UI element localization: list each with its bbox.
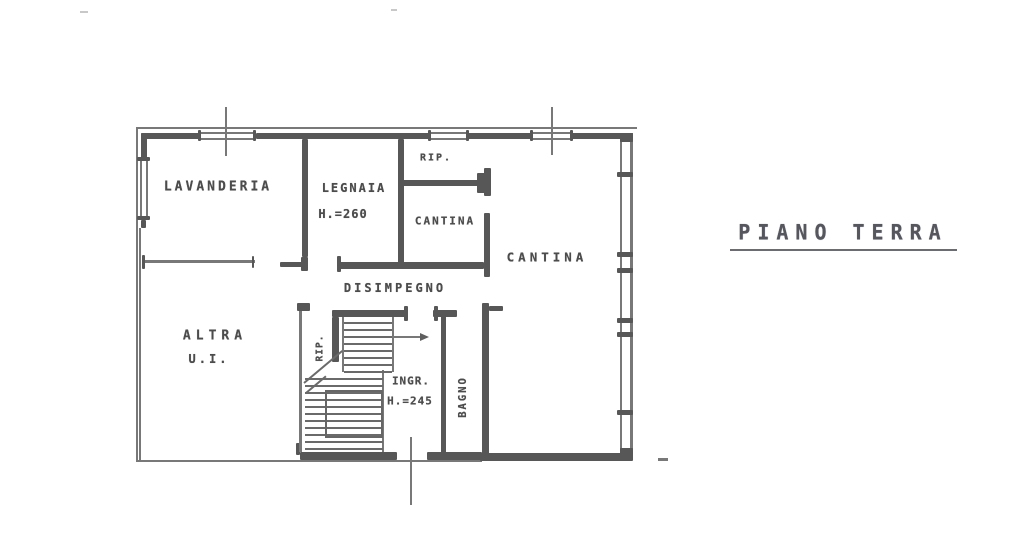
stair-tread bbox=[305, 448, 383, 450]
wall-left-seg3 bbox=[139, 228, 141, 462]
partition-tick-left bbox=[142, 255, 145, 269]
room-label-disimpegno: DISIMPEGNO bbox=[344, 281, 446, 295]
room-label-lavanderia: LAVANDERIA bbox=[164, 180, 272, 195]
wall-top-seg2 bbox=[256, 133, 430, 139]
wall-right-mullion-5 bbox=[617, 332, 633, 337]
window-top-c-jamb-left bbox=[530, 130, 533, 141]
window-top-a-axis bbox=[225, 107, 227, 156]
wall-left-seg2 bbox=[141, 220, 146, 228]
room-label-altra: ALTRA bbox=[183, 329, 247, 344]
wall-bottom-seg2 bbox=[427, 452, 482, 460]
partition-lavanderia-altra bbox=[143, 260, 255, 263]
scan-speck bbox=[80, 11, 88, 13]
stair-tread bbox=[305, 378, 383, 380]
wall-bottom-seg3 bbox=[480, 453, 633, 461]
room-height-ingresso: H.=245 bbox=[387, 395, 433, 408]
stair-tread bbox=[344, 336, 392, 338]
plan-title: PIANO TERRA bbox=[738, 219, 947, 245]
stair-direction-arrow bbox=[420, 333, 429, 341]
wall-left-seg1 bbox=[141, 133, 147, 160]
door-jamb-ingresso-left bbox=[404, 306, 408, 321]
wall-altra-right-cap bbox=[297, 303, 310, 311]
floor-plan: LAVANDERIA LEGNAIA H.=260 RIP. CANTINA C… bbox=[0, 0, 1024, 555]
outer-boundary-left bbox=[136, 127, 138, 462]
window-top-a-outer bbox=[200, 132, 256, 134]
wall-top-seg3 bbox=[468, 133, 532, 139]
wall-disimpegno-bottom-1 bbox=[332, 310, 408, 317]
room-label-bagno: BAGNO bbox=[457, 376, 469, 418]
wall-rip-cantina-small bbox=[402, 180, 480, 186]
stair-tread bbox=[344, 343, 392, 345]
room-label-rip-understairs: RIP. bbox=[315, 335, 326, 362]
stair-direction-line bbox=[392, 336, 422, 338]
stair-upper-edge bbox=[392, 317, 394, 372]
stair-tread bbox=[344, 329, 392, 331]
wall-cantina-divider-lower bbox=[484, 213, 490, 277]
plan-title-underline bbox=[730, 249, 957, 251]
wall-top-seg1 bbox=[141, 133, 200, 139]
room-label-cantina-small: CANTINA bbox=[415, 215, 475, 228]
entrance-door-axis bbox=[410, 437, 412, 505]
wall-right-mullion-2 bbox=[617, 252, 633, 257]
room-label-altra-ui: U.I. bbox=[189, 352, 230, 366]
window-left-outer bbox=[140, 160, 142, 218]
wall-bottom-seg1 bbox=[300, 452, 397, 460]
stair-tread bbox=[344, 322, 392, 324]
window-top-b-outer bbox=[430, 132, 468, 134]
room-label-rip-top: RIP. bbox=[420, 153, 452, 164]
wall-disimpegno-top bbox=[340, 262, 484, 269]
wall-right-mullion-6 bbox=[617, 410, 633, 415]
window-top-b-jamb-left bbox=[428, 130, 431, 141]
outer-boundary-top bbox=[136, 127, 637, 129]
wall-right-mullion-3 bbox=[617, 268, 633, 273]
wall-right-mullion-4 bbox=[617, 318, 633, 323]
door-jamb-legnaia bbox=[337, 256, 341, 272]
wall-altra-right bbox=[299, 310, 302, 452]
stair-void-outline bbox=[325, 390, 383, 438]
door-jamb-ingresso-right bbox=[434, 306, 438, 321]
window-top-a-jamb-left bbox=[198, 130, 201, 141]
window-left-inner bbox=[146, 160, 148, 218]
room-label-legnaia: LEGNAIA bbox=[322, 181, 387, 195]
window-left-jamb-top bbox=[137, 157, 150, 161]
wall-legnaia-cantina bbox=[398, 139, 404, 265]
window-top-b-inner bbox=[430, 138, 468, 140]
wall-cantina-divider-upper bbox=[484, 168, 491, 196]
wall-right-mullion-1 bbox=[617, 172, 633, 177]
room-label-cantina-large: CANTINA bbox=[507, 250, 588, 265]
outer-boundary-bottom bbox=[136, 460, 482, 462]
stair-tread bbox=[344, 357, 392, 359]
wall-cantina-left-lower bbox=[482, 303, 489, 455]
room-height-legnaia: H.=260 bbox=[318, 207, 367, 221]
stair-tread bbox=[344, 364, 392, 366]
scan-dash bbox=[658, 458, 668, 461]
wall-bagno-left bbox=[441, 315, 446, 453]
room-label-ingresso: INGR. bbox=[392, 375, 430, 388]
stair-tread bbox=[344, 371, 392, 373]
window-top-a-inner bbox=[200, 138, 256, 140]
stair-tread bbox=[344, 350, 392, 352]
scan-speck bbox=[391, 9, 397, 11]
wall-right-corner-top bbox=[620, 133, 633, 142]
wall-lavanderia-legnaia bbox=[302, 139, 308, 257]
stair-tread bbox=[305, 441, 383, 443]
partition-tick-right bbox=[252, 256, 254, 268]
window-top-c-axis bbox=[551, 107, 553, 155]
door-tick-lavanderia bbox=[280, 262, 304, 267]
wall-right-inner-line bbox=[620, 140, 622, 450]
door-tick-cantina bbox=[489, 306, 503, 311]
